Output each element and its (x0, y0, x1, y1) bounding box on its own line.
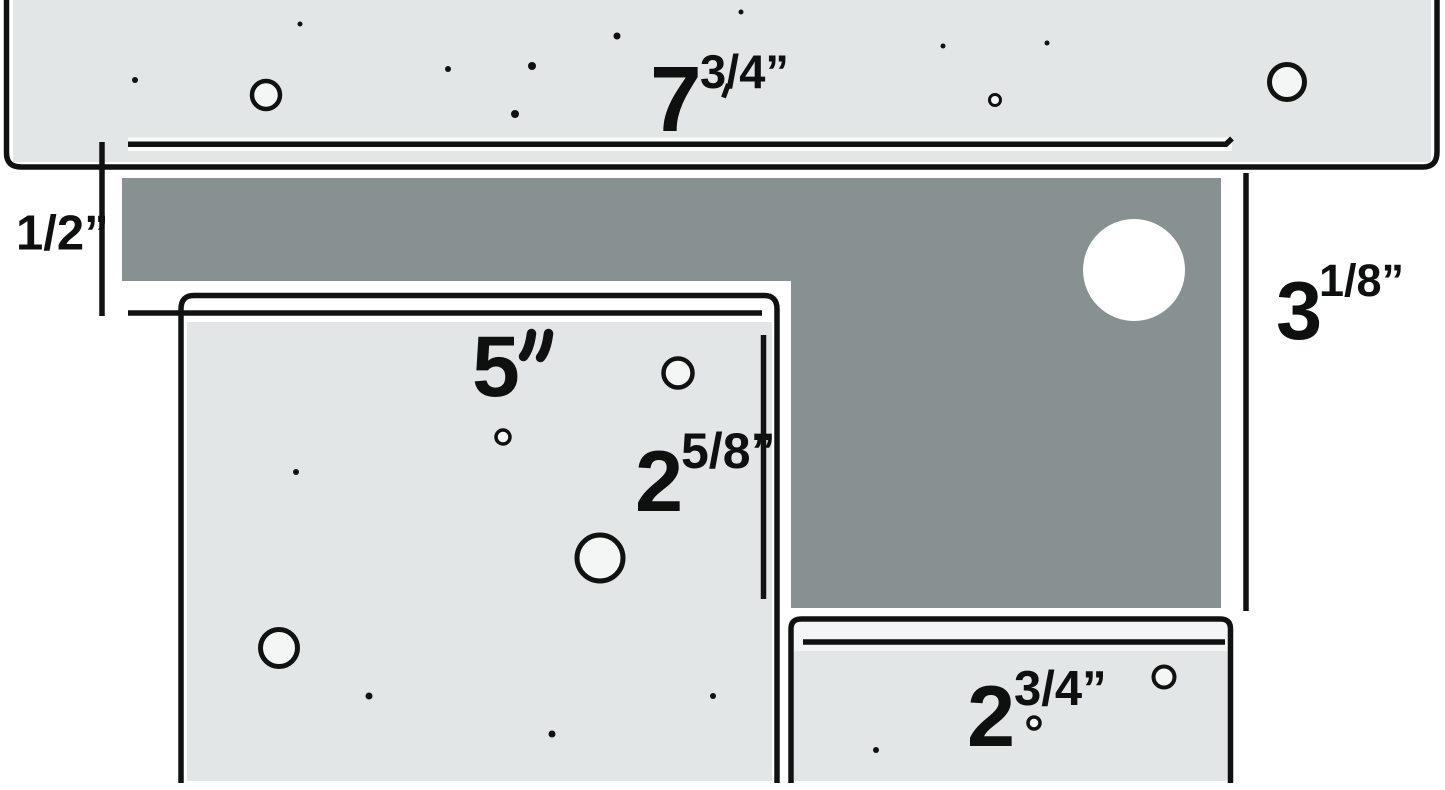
svg-text:3/4”: 3/4” (700, 45, 789, 98)
svg-text:7: 7 (650, 47, 702, 151)
svg-text:2: 2 (635, 434, 683, 530)
svg-text:5: 5 (472, 319, 520, 415)
svg-text:5/8”: 5/8” (681, 423, 776, 479)
svg-text:1/8”: 1/8” (1319, 255, 1404, 306)
svg-text:1/2”: 1/2” (16, 207, 109, 261)
svg-text:3: 3 (1276, 264, 1322, 357)
svg-text:2: 2 (967, 669, 1015, 765)
svg-text:3/4”: 3/4” (1014, 662, 1107, 716)
